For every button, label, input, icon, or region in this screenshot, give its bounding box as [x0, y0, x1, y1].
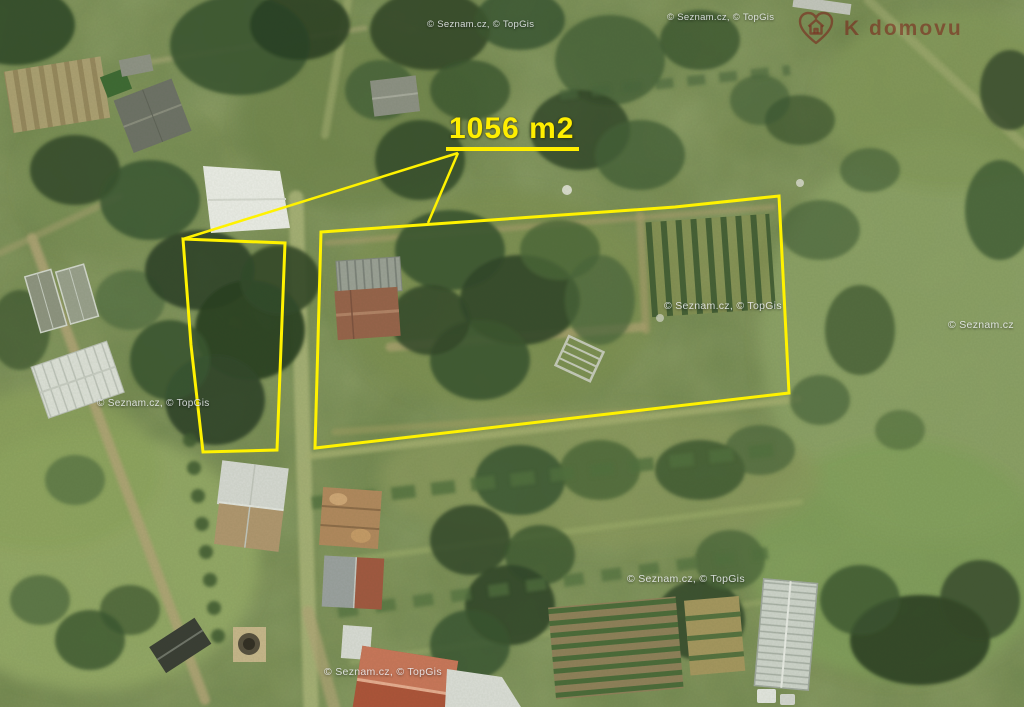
watermark-attribution: © Seznam.cz, © TopGis	[627, 573, 745, 585]
watermark-attribution: © Seznam.cz	[948, 319, 1014, 331]
watermark-attribution: © Seznam.cz, © TopGis	[664, 300, 782, 312]
watermark-attribution: © Seznam.cz, © TopGis	[667, 12, 774, 23]
aerial-photo	[0, 0, 1024, 707]
aerial-map-view: 1056 m2 © Seznam.cz, © TopGis © Seznam.c…	[0, 0, 1024, 707]
watermark-attribution: © Seznam.cz, © TopGis	[97, 398, 210, 409]
heart-house-icon	[797, 11, 835, 47]
area-label: 1056 m2	[446, 112, 579, 151]
watermark-attribution: © Seznam.cz, © TopGis	[324, 666, 442, 678]
watermark-attribution: © Seznam.cz, © TopGis	[427, 19, 534, 30]
k-domovu-logo: K domovu	[797, 11, 963, 47]
logo-text: K domovu	[844, 17, 963, 41]
